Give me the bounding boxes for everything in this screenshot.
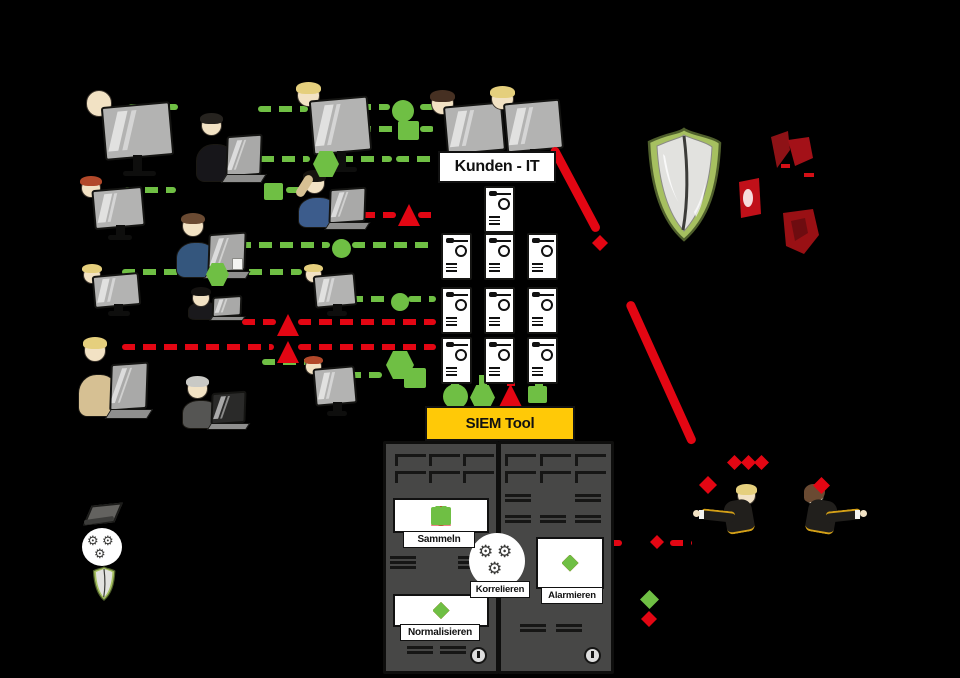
rack-vent: [505, 520, 531, 523]
server-line: [532, 267, 543, 269]
server-topline: [489, 240, 511, 242]
legend-laptop-icon: [84, 504, 118, 526]
server-line: [489, 223, 500, 225]
alert-triangle-icon: [398, 204, 420, 226]
red-dashed-flow-line: [418, 212, 438, 218]
client-user-person: [82, 266, 140, 316]
rack-vent: [390, 561, 416, 564]
laptop-deck: [324, 222, 370, 230]
client-user-person: [80, 178, 144, 240]
monitor-icon: [503, 98, 564, 153]
rack-vent: [440, 646, 466, 649]
server-ring: [498, 349, 510, 361]
rack-slot: [575, 471, 606, 483]
red-dashed-flow-line: [298, 344, 436, 350]
laptop-deck: [207, 423, 250, 430]
client-user-person: [196, 112, 264, 186]
server-ring: [541, 245, 553, 257]
rack-vent: [575, 515, 601, 518]
monitor-base: [327, 311, 347, 316]
alert-diamond-icon: [641, 611, 657, 627]
person-hair: [82, 264, 102, 273]
client-user-person: [304, 266, 356, 316]
gear-icon: ⚙: [94, 547, 106, 560]
server-icon: [527, 287, 558, 334]
client-user-person: [304, 358, 356, 416]
gear-icon: ⚙: [487, 560, 502, 577]
person-head: [187, 378, 207, 398]
monitor-base: [123, 171, 156, 176]
kunden-it-label: Kunden - IT: [438, 151, 556, 183]
power-icon: [470, 647, 487, 664]
event-square-icon: [404, 368, 426, 388]
alert-diamond-icon: [754, 455, 769, 470]
alert-diamond-icon: [592, 235, 608, 251]
server-line: [489, 317, 500, 319]
laptop-deck: [105, 409, 153, 419]
rack-slot: [463, 454, 494, 466]
shield-icon: [642, 126, 726, 246]
laptop-icon: [328, 187, 366, 225]
alarmieren-label-text: Alarmieren: [548, 590, 596, 601]
event-diamond-icon: [640, 590, 659, 609]
event-diamond-icon: [433, 602, 450, 619]
server-line: [446, 270, 457, 272]
alert-triangle-icon: [277, 341, 299, 363]
server-line: [446, 267, 457, 269]
rack-vent: [575, 494, 601, 497]
rack-vent: [505, 515, 531, 518]
rack-vent: [556, 624, 582, 627]
sammeln-events-box: [393, 498, 489, 533]
alert-diamond-icon: [650, 535, 664, 549]
red-dashed-flow-line: [242, 319, 276, 325]
rack-vent: [390, 566, 416, 569]
server-line: [489, 324, 500, 326]
server-icon: [527, 337, 558, 384]
rack-vent: [540, 515, 566, 518]
sammeln-label-text: Sammeln: [417, 534, 460, 545]
server-line: [532, 374, 543, 376]
green-dashed-flow-line: [352, 242, 436, 248]
red-dashed-flow-line: [298, 319, 436, 325]
server-topline: [532, 294, 554, 296]
rack-vent: [505, 494, 531, 497]
server-line: [489, 367, 500, 369]
server-topline: [446, 344, 468, 346]
server-icon: [484, 233, 515, 280]
rack-slot: [429, 454, 460, 466]
person-hair: [304, 264, 323, 272]
alarmieren-label: Alarmieren: [541, 587, 603, 604]
person-hair: [490, 86, 514, 98]
client-user-person: [78, 336, 150, 422]
server-ring: [541, 349, 553, 361]
server-line: [489, 263, 500, 265]
client-user-person: [188, 288, 244, 322]
server-line: [446, 374, 457, 376]
analyst-hand: [860, 510, 867, 517]
server-icon: [484, 287, 515, 334]
server-icon: [441, 233, 472, 280]
korrelieren-label-text: Korrelieren: [476, 584, 525, 595]
server-ring: [455, 245, 467, 257]
person-hair: [296, 82, 321, 94]
person-head: [182, 215, 204, 237]
server-line: [446, 321, 457, 323]
server-ring: [455, 349, 467, 361]
person-hair: [181, 213, 205, 225]
server-line: [532, 324, 543, 326]
monitor-icon: [309, 96, 372, 156]
server-icon: [484, 337, 515, 384]
attack-line-lower: [625, 300, 697, 446]
analyst-person: [712, 486, 772, 540]
rack-vent: [556, 629, 582, 632]
monitor-icon: [101, 101, 175, 161]
laptop-icon: [109, 362, 148, 412]
laptop-icon: [225, 133, 262, 177]
person-hair: [83, 337, 107, 349]
attack-line-upper: [549, 145, 602, 233]
event-square-icon: [431, 507, 451, 525]
person-head: [84, 339, 106, 361]
server-icon: [484, 186, 515, 233]
sammeln-label: Sammeln: [403, 531, 475, 548]
server-topline: [532, 240, 554, 242]
server-line: [532, 270, 543, 272]
rack-vent: [540, 520, 566, 523]
kunden-it-label-text: Kunden - IT: [455, 158, 540, 176]
server-icon: [441, 337, 472, 384]
server-topline: [489, 193, 511, 195]
server-line: [446, 317, 457, 319]
alert-triangle-icon: [277, 314, 299, 336]
siem-tool-bar: SIEM Tool: [425, 406, 575, 441]
server-ring: [455, 299, 467, 311]
rack-slot: [429, 471, 460, 483]
gear-icon: ⚙: [497, 543, 512, 560]
rack-vent: [575, 520, 601, 523]
rack-slot: [463, 471, 494, 483]
server-ring: [498, 245, 510, 257]
event-circle-icon: [332, 239, 351, 258]
server-icon: [441, 287, 472, 334]
server-line: [489, 321, 500, 323]
server-line: [489, 267, 500, 269]
attacker-devil-fragments: [735, 125, 830, 260]
server-line: [446, 367, 457, 369]
event-square-icon: [398, 121, 419, 140]
server-ring: [498, 299, 510, 311]
rack-slot: [505, 454, 536, 466]
event-circle-icon: [392, 100, 414, 122]
server-line: [532, 371, 543, 373]
event-square-icon: [528, 386, 547, 403]
person-hair: [186, 376, 208, 387]
server-topline: [489, 344, 511, 346]
client-user-person: [182, 376, 248, 432]
korrelieren-label: Korrelieren: [470, 581, 530, 598]
server-ring: [541, 299, 553, 311]
green-dashed-flow-line: [238, 242, 330, 248]
rack-vent: [520, 624, 546, 627]
server-ring: [498, 198, 510, 210]
normalisieren-events-box: [393, 594, 489, 627]
server-topline: [532, 344, 554, 346]
normalisieren-label: Normalisieren: [400, 624, 480, 641]
rack-vent: [407, 646, 433, 649]
red-dashed-flow-line: [670, 540, 692, 546]
monitor-base: [108, 235, 132, 240]
green-dashed-flow-line: [408, 296, 436, 302]
legend-gears-icon: ⚙ ⚙ ⚙: [82, 528, 122, 566]
server-line: [532, 317, 543, 319]
rack-slot: [540, 471, 571, 483]
event-circle-icon: [391, 293, 409, 311]
monitor-base: [327, 411, 347, 416]
normalisieren-label-text: Normalisieren: [408, 627, 472, 638]
person-hair: [430, 90, 455, 102]
server-line: [446, 263, 457, 265]
laptop-deck: [221, 174, 266, 183]
rack-slot: [540, 454, 571, 466]
server-line: [489, 371, 500, 373]
laptop-icon: [212, 295, 243, 318]
event-diamond-icon: [562, 555, 579, 572]
server-topline: [446, 294, 468, 296]
event-square-icon: [264, 183, 283, 200]
monitor-base: [108, 311, 130, 316]
rack-slot: [395, 454, 426, 466]
server-line: [489, 270, 500, 272]
alert-diamond-icon: [727, 455, 742, 470]
client-user-person: [84, 90, 172, 176]
rack-slot: [395, 471, 426, 483]
person-hair: [736, 484, 757, 495]
rack-vent: [505, 499, 531, 502]
server-line: [532, 367, 543, 369]
diagram-canvas: Kunden - IT SIEM Tool Sammeln Normalisie…: [0, 0, 960, 678]
rack-vent: [390, 556, 416, 559]
server-icon: [527, 233, 558, 280]
person-head: [201, 115, 222, 136]
person-hair: [191, 287, 211, 296]
monitor-icon: [312, 365, 358, 406]
server-line: [446, 371, 457, 373]
coffee-cup: [232, 258, 243, 270]
rack-slot: [505, 471, 536, 483]
alert-diamond-icon: [741, 455, 756, 470]
monitor-icon: [91, 186, 146, 230]
alarmieren-events-box: [536, 537, 604, 589]
server-topline: [446, 240, 468, 242]
server-line: [446, 324, 457, 326]
rack-vent: [440, 651, 466, 654]
rack-slot: [575, 454, 606, 466]
monitor-stand: [133, 155, 142, 170]
person-hair: [200, 113, 223, 124]
server-topline: [489, 294, 511, 296]
laptop-icon: [210, 391, 246, 426]
rack-vent: [407, 651, 433, 654]
server-line: [532, 321, 543, 323]
siem-tool-label-text: SIEM Tool: [466, 415, 535, 432]
analyst-person: [788, 486, 850, 540]
power-icon: [584, 647, 601, 664]
rack-vent: [575, 499, 601, 502]
server-line: [489, 216, 500, 218]
server-line: [532, 263, 543, 265]
server-line: [489, 220, 500, 222]
person-hair: [80, 176, 102, 186]
rack-vent: [520, 629, 546, 632]
legend-shield-icon: [90, 566, 118, 602]
server-line: [489, 374, 500, 376]
gear-icon: ⚙: [478, 543, 493, 560]
person-hair: [304, 356, 323, 364]
laptop-deck: [209, 316, 246, 321]
